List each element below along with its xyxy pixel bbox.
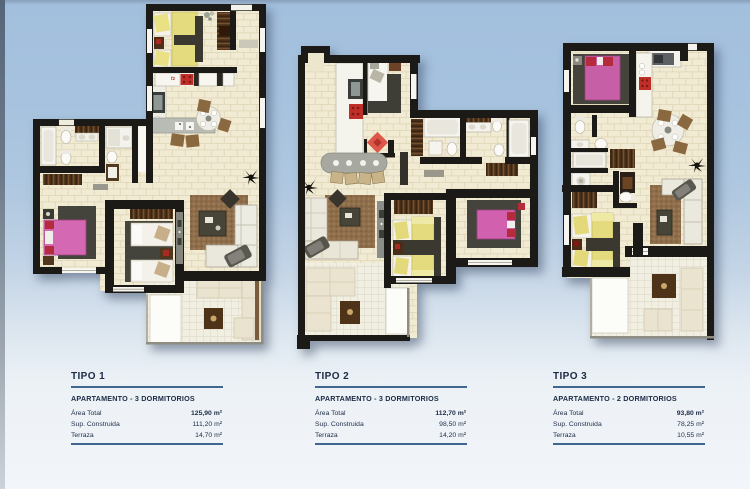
svg-text:f2: f2 [171, 76, 175, 81]
